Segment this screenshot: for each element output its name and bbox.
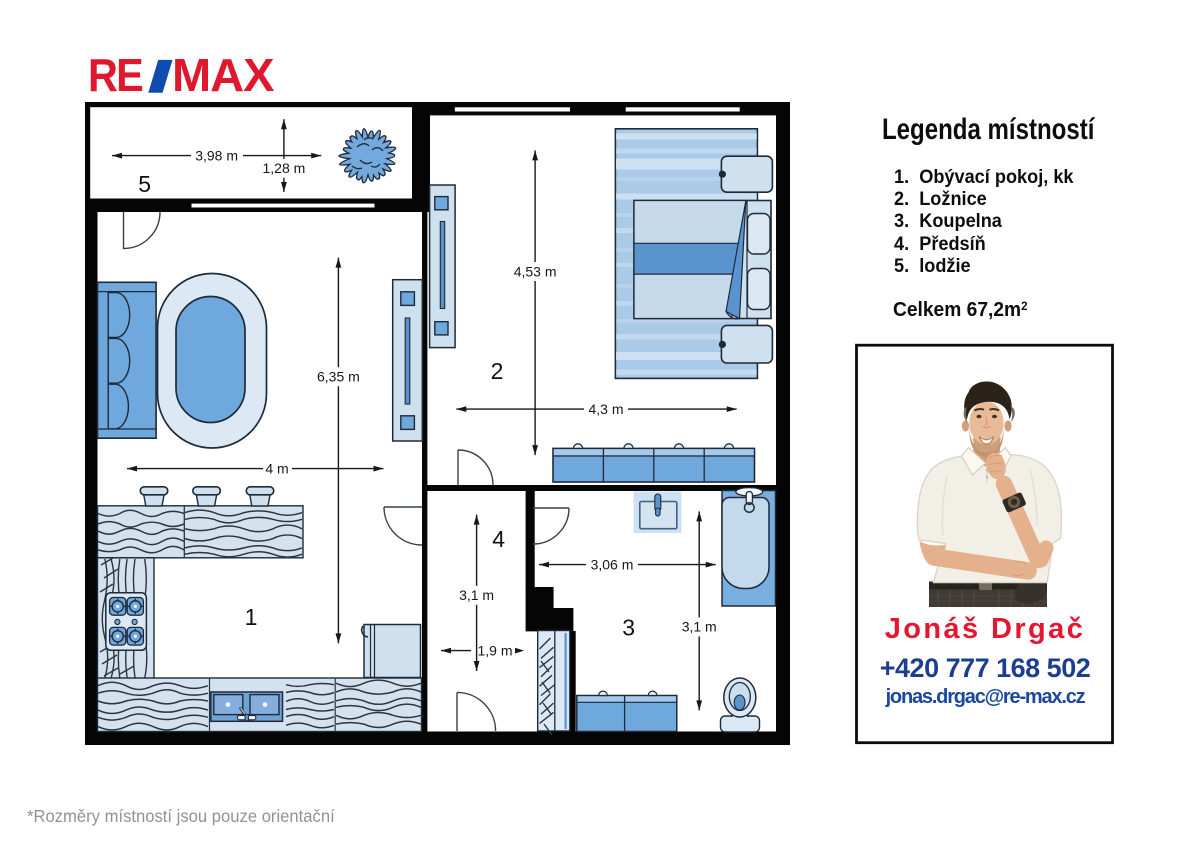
svg-text:5: 5 [138, 171, 151, 197]
svg-text:3,06 m: 3,06 m [591, 556, 634, 572]
svg-text:4,3 m: 4,3 m [588, 401, 623, 417]
svg-text:3,1 m: 3,1 m [682, 619, 717, 635]
svg-text:1: 1 [245, 604, 258, 630]
svg-text:1,28 m: 1,28 m [262, 160, 305, 176]
svg-text:4 m: 4 m [265, 460, 288, 476]
svg-text:4: 4 [492, 526, 505, 552]
svg-text:3,98 m: 3,98 m [195, 147, 238, 163]
svg-text:6,35 m: 6,35 m [317, 369, 360, 385]
svg-text:4,53 m: 4,53 m [514, 263, 557, 279]
svg-text:2: 2 [491, 358, 504, 384]
svg-text:3: 3 [622, 615, 635, 641]
svg-text:1,9 m: 1,9 m [477, 642, 512, 658]
svg-text:3,1 m: 3,1 m [459, 587, 494, 603]
